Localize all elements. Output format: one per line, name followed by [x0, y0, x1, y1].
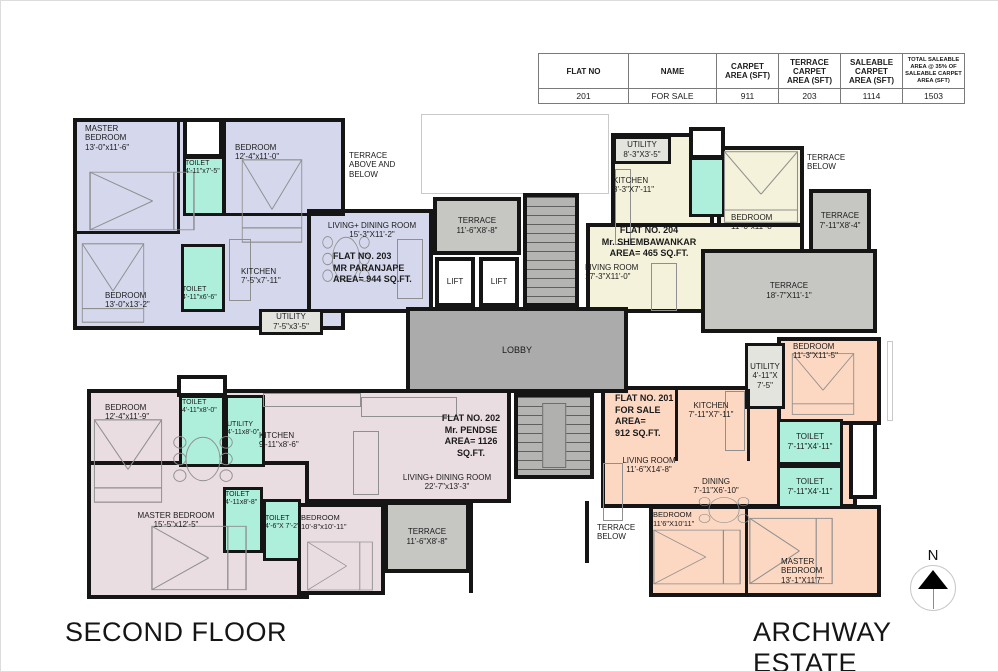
north-label: N	[907, 547, 959, 564]
sofa-furniture	[353, 431, 379, 495]
label-toilet1-202: TOILET4'-11"x8'-0"	[182, 399, 226, 415]
col-header-total-saleable-area: TOTAL SALEABLE AREA @ 35% OF SALEABLE CA…	[903, 54, 965, 89]
terrace-204-big: TERRACE18'-7"X11'-1"	[701, 249, 877, 333]
window-strip	[887, 341, 893, 421]
label-terrace-204-small: TERRACE7'-11"X8'-4"	[819, 211, 860, 230]
table-row: 201 FOR SALE 911 203 1114 1503	[539, 89, 965, 104]
label-toilet1-201: TOILET7'-11"X4'-11"	[788, 432, 833, 451]
col-header-saleable-carpet-area: SALEABLE CARPET AREA (SFT)	[841, 54, 903, 89]
label-kitchen-202: KITCHEN9'-11"x8'-6"	[259, 431, 325, 450]
bed-furniture	[93, 419, 163, 503]
stair-rail	[542, 403, 566, 467]
label-toilet2-203: TOILET4'-11"x6'-6"	[182, 286, 228, 302]
toilet-201-1: TOILET7'-11"X4'-11"	[777, 419, 843, 465]
wall	[585, 501, 589, 563]
label-flat-203: FLAT NO. 203MR PARANJAPEAREA= 944 SQ.FT.	[333, 251, 435, 286]
label-bedroom2-203: BEDROOM12'-4"x11'-0"	[235, 143, 311, 162]
kitchen-counter	[725, 391, 745, 451]
label-lobby: LOBBY	[502, 345, 532, 356]
void-outline	[421, 114, 609, 194]
label-dining-201: DINING7'-11"X6'-10"	[685, 477, 747, 496]
label-bedroom1-201: BEDROOM11'-3"X11'-5"	[793, 342, 867, 361]
bed-furniture	[151, 525, 247, 591]
label-bedroom-204: BEDROOM11'-0"x11'-8"	[731, 213, 803, 232]
floor-title: SECOND FLOOR	[65, 617, 287, 648]
label-master-bedroom-203: MASTER BEDROOM13'-0"x11'-6"	[85, 124, 149, 152]
label-bedroom3-202: BEDROOM10'-8"x10'-11"	[301, 514, 371, 532]
bed-furniture	[81, 243, 145, 323]
wall	[469, 501, 473, 593]
col-header-flat-no: FLAT NO	[539, 54, 629, 89]
floor-plan-page: FLAT NO NAME CARPET AREA (SFT) TERRACE C…	[0, 0, 998, 672]
terrace-204-small: TERRACE7'-11"X8'-4"	[809, 189, 871, 253]
terrace-202: TERRACE11'-6"X8'-8"	[384, 501, 470, 573]
label-living-201: LIVING ROOM11'-6"X14'-8"	[611, 456, 687, 475]
label-utility-201: UTILITY4'-11"X 7'-5"	[748, 362, 782, 391]
label-utility-203: UTILITY7'-5"x3'-5"	[273, 312, 309, 331]
north-compass: N	[907, 547, 959, 611]
cell-flat-no: 201	[539, 89, 629, 104]
duct-shaft	[177, 375, 227, 397]
toilet-204	[689, 157, 725, 217]
label-terrace-202: TERRACE11'-6"X8'-8"	[406, 527, 447, 546]
utility-201: UTILITY4'-11"X 7'-5"	[745, 343, 785, 409]
col-header-terrace-carpet-area: TERRACE CARPET AREA (SFT)	[779, 54, 841, 89]
label-kitchen-203: KITCHEN7'-5"x7'-11"	[241, 267, 303, 286]
label-toilet2-201: TOILET7'-11"X4'-11"	[788, 477, 833, 496]
label-flat-201: FLAT NO. 201FOR SALEAREA=912 SQ.FT.	[615, 393, 689, 440]
label-living-202: LIVING+ DINING ROOM22'-7"x13'-3"	[377, 473, 517, 492]
duct-shaft	[183, 118, 223, 158]
project-title: ARCHWAY ESTATE	[753, 617, 998, 672]
flat-info-table: FLAT NO NAME CARPET AREA (SFT) TERRACE C…	[538, 53, 965, 104]
cell-terrace-carpet-area: 203	[779, 89, 841, 104]
bed-furniture	[89, 171, 195, 231]
lift-2: LIFT	[479, 257, 519, 307]
col-header-name: NAME	[629, 54, 717, 89]
cell-saleable-carpet-area: 1114	[841, 89, 903, 104]
cell-total-saleable-area: 1503	[903, 89, 965, 104]
col-header-carpet-area: CARPET AREA (SFT)	[717, 54, 779, 89]
label-toilet2-202: TOILET4'-11x8'-8"	[225, 491, 267, 507]
toilet-201-2: TOILET7'-11"X4'-11"	[777, 465, 843, 509]
label-terrace-below-top: TERRACEBELOW	[807, 153, 863, 172]
compass-needle	[918, 570, 948, 589]
lift-1: LIFT	[435, 257, 475, 307]
label-terrace-below-bottom: TERRACEBELOW	[597, 523, 647, 542]
cell-carpet-area: 911	[717, 89, 779, 104]
label-flat-202: FLAT NO. 202Mr. PENDSEAREA= 1126SQ.FT.	[427, 413, 515, 460]
bed-furniture	[791, 353, 855, 415]
label-master-bedroom-202: MASTER BEDROOM15'-5"x12'-5"	[127, 511, 225, 530]
label-bedroom2-201: BEDROOM11'6"X10'11"	[653, 511, 721, 529]
label-lift-2: LIFT	[491, 277, 507, 287]
utility-203: UTILITY7'-5"x3'-5"	[259, 309, 323, 335]
cell-name: FOR SALE	[629, 89, 717, 104]
label-kitchen-201: KITCHEN7'-11"X7'-11"	[679, 401, 743, 420]
wall	[73, 231, 180, 234]
label-kitchen-204: KITCHEN8'-3"X7'-11"	[613, 176, 673, 195]
label-terrace-above-below: TERRACEABOVE ANDBELOW	[349, 151, 419, 179]
label-bedroom3-203: BEDROOM13'-0"x13'-2"	[105, 291, 181, 310]
duct-shaft	[689, 127, 725, 159]
label-lift-1: LIFT	[447, 277, 463, 287]
bed-furniture	[653, 529, 741, 585]
wall	[747, 389, 750, 461]
north-arrow-icon	[910, 565, 956, 611]
label-utility-204: UTILITY8'-3"X3'-5"	[623, 140, 660, 159]
label-flat-204: FLAT NO. 204Mr. SHEMBAWANKARAREA= 465 SQ…	[587, 225, 711, 260]
compass-stem	[933, 589, 934, 609]
bed-furniture	[241, 159, 303, 243]
sofa-furniture	[651, 263, 677, 311]
label-master-bedroom-201: MASTER BEDROOM13'-1"X11'7"	[781, 557, 845, 585]
label-terrace-204-big: TERRACE18'-7"X11'-1"	[766, 281, 812, 300]
label-living-204: LIVING ROOM17'-3"X11'-0"	[585, 263, 647, 282]
lobby: LOBBY	[406, 307, 628, 393]
staircase-top	[523, 193, 579, 307]
label-bedroom1-202: BEDROOM12'-4"x11'-9"	[105, 403, 179, 422]
label-terrace-center: TERRACE11'-6"X8'-8"	[456, 216, 497, 235]
utility-204: UTILITY8'-3"X3'-5"	[613, 136, 671, 164]
bed-furniture	[307, 541, 373, 591]
duct-shaft	[849, 421, 877, 499]
label-living-203: LIVING+ DINING ROOM15'-3"X11'-2"	[319, 221, 425, 240]
label-toilet3-202: TOILET4'-6"X 7'-2"	[265, 515, 301, 531]
kitchen-counter	[263, 393, 361, 407]
terrace-center: TERRACE11'-6"X8'-8"	[433, 197, 521, 255]
label-toilet1-203: TOILET4'-11"x7'-5"	[185, 160, 229, 176]
staircase-lower	[514, 393, 594, 479]
